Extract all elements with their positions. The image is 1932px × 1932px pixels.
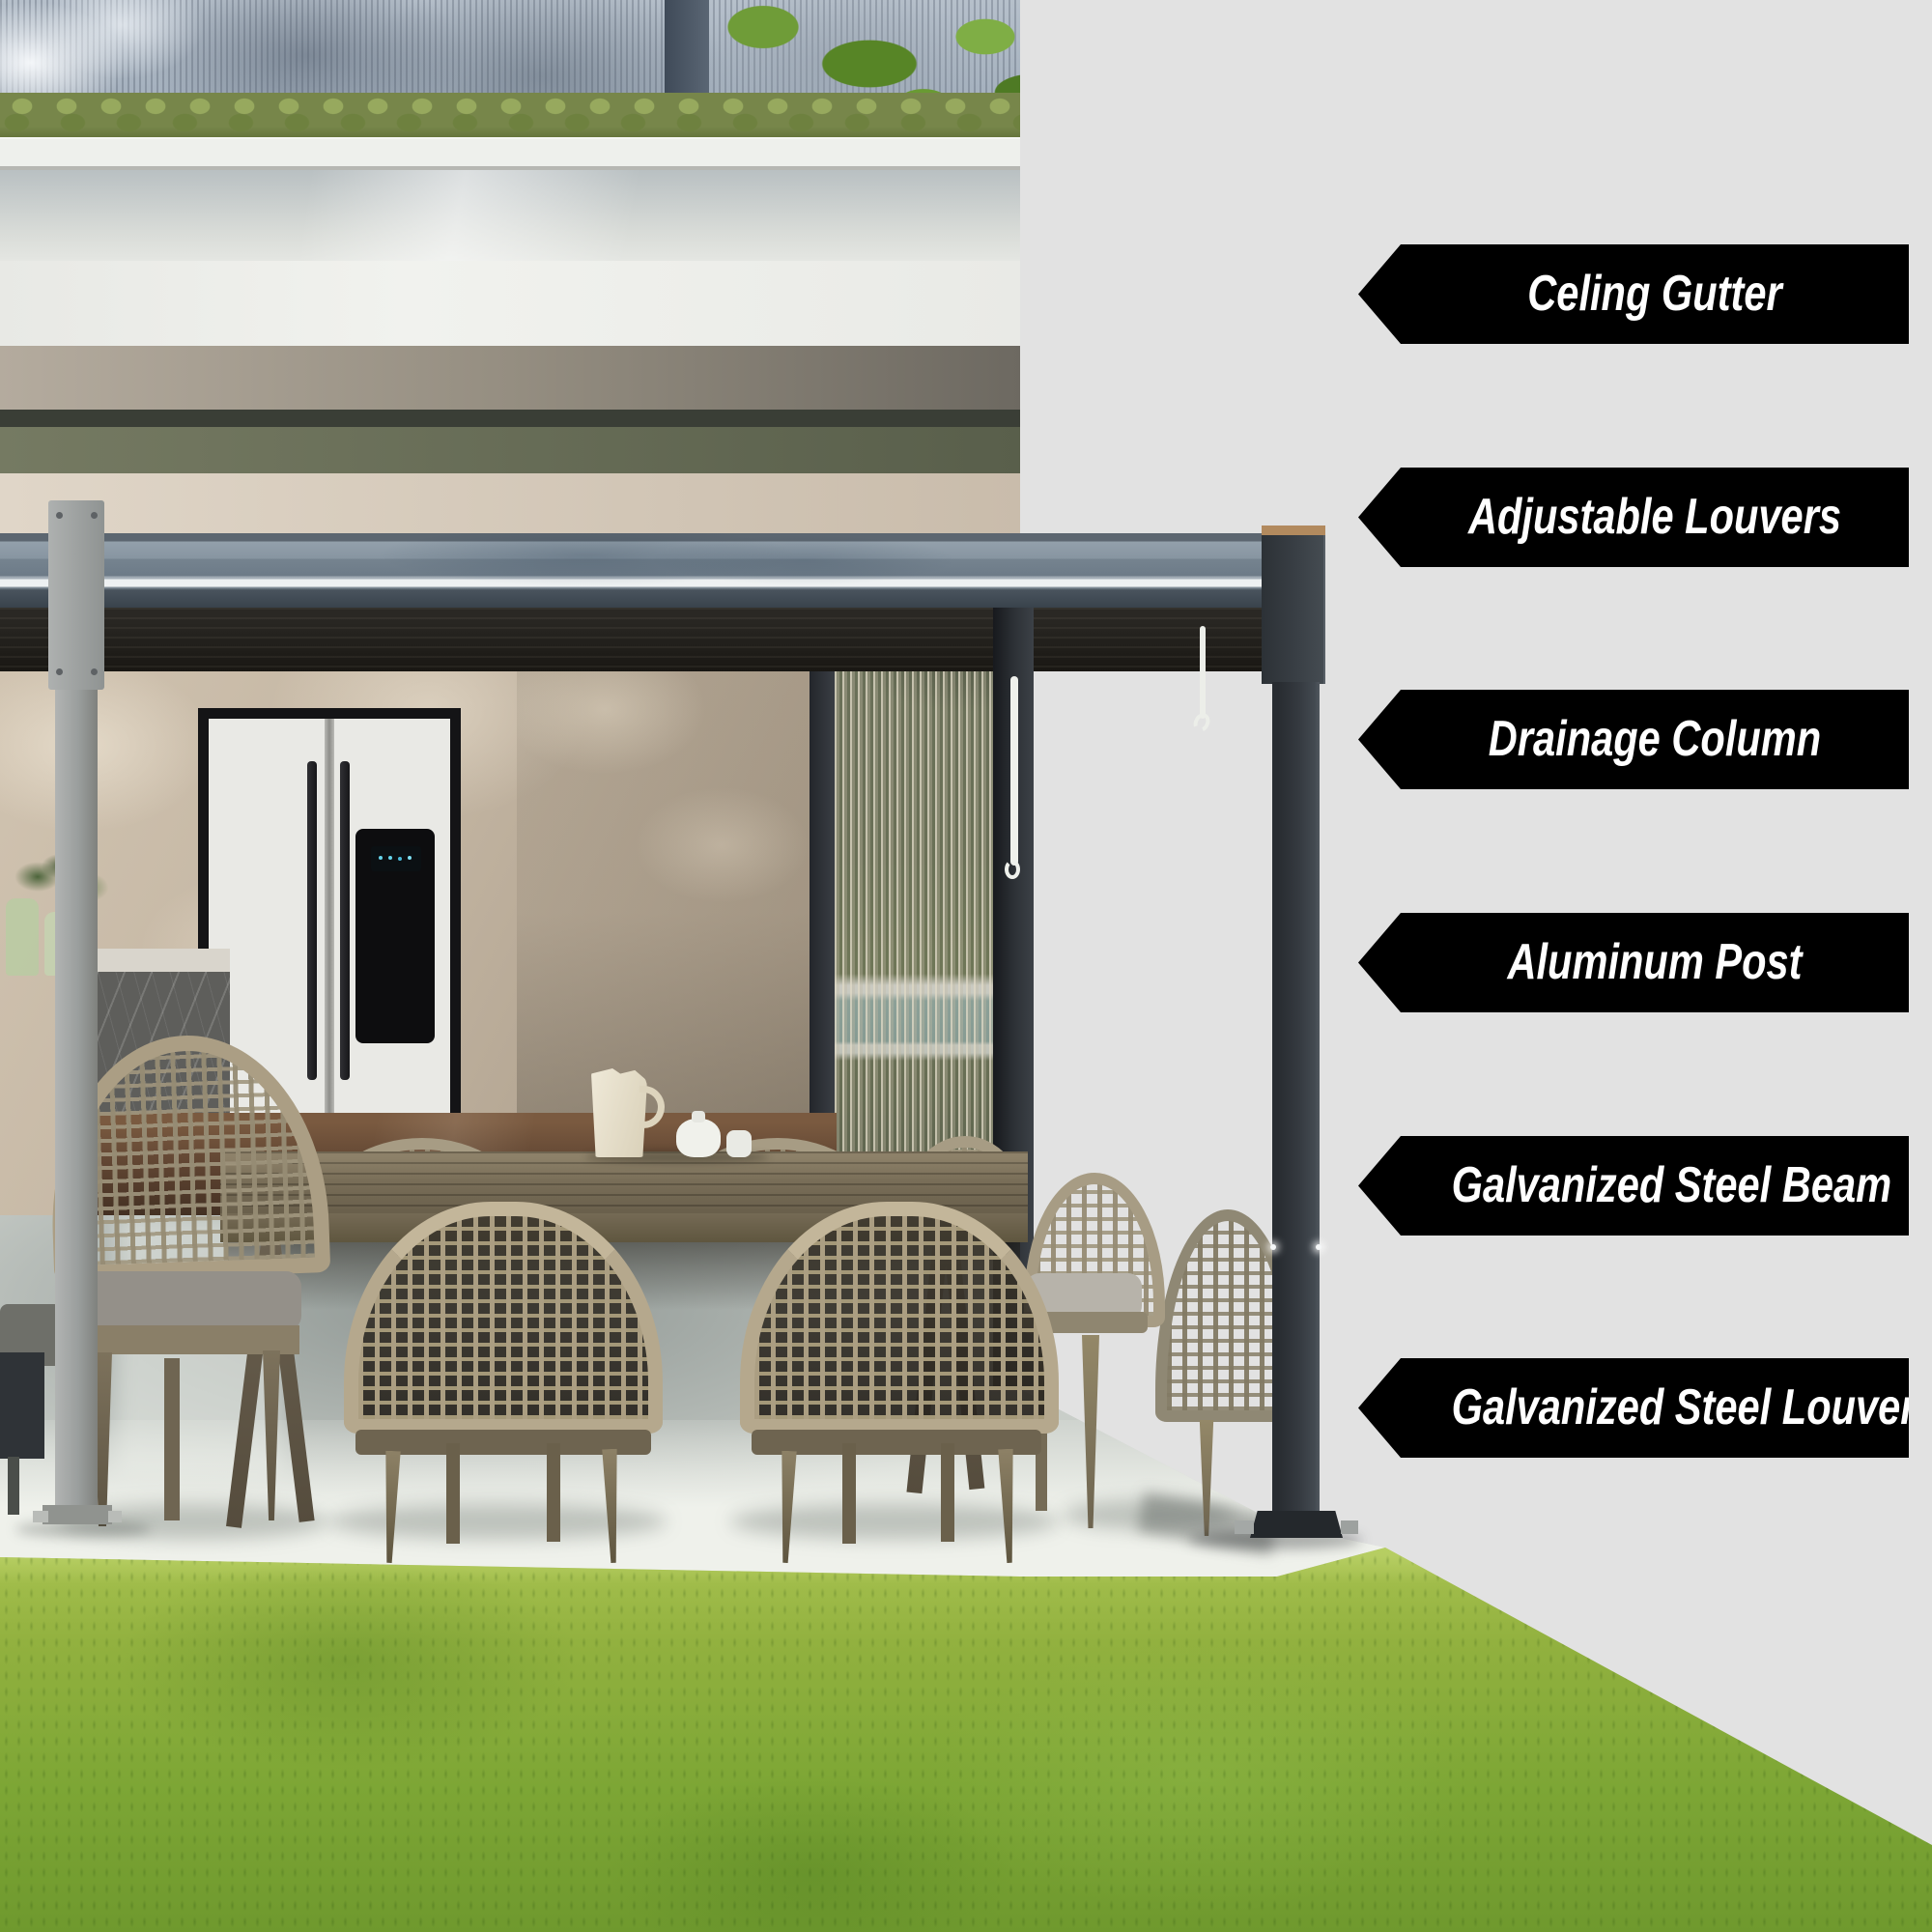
lounge-leg [8, 1457, 19, 1515]
pergola-post-plate [48, 500, 104, 690]
callout-ceiling-gutter: Celing Gutter [1358, 244, 1909, 344]
balcony-hedge [0, 93, 1020, 141]
chair-leg [547, 1443, 560, 1542]
anchor-plate [33, 1511, 48, 1522]
chair-leg [842, 1443, 856, 1544]
callout-label: Celing Gutter [1452, 244, 1859, 344]
louver-crank-hook [1005, 860, 1020, 879]
chair-cushion [79, 1271, 301, 1331]
pergola-corner-cap [1262, 526, 1325, 535]
callout-label: Galvanized Steel Louvers [1452, 1358, 1859, 1458]
callout-label: Drainage Column [1452, 690, 1859, 789]
pergola-corner-block [1262, 526, 1325, 684]
screw [91, 668, 98, 675]
screw [56, 512, 63, 519]
refrigerator-handle-left [307, 761, 317, 1080]
anchor-plate [1235, 1520, 1254, 1534]
interior-wall-band [0, 473, 1020, 539]
callout-galvanized-steel-louvers: Galvanized Steel Louvers [1358, 1358, 1909, 1458]
pergola-infographic: Celing Gutter Adjustable Louvers Drainag… [0, 0, 1932, 1932]
callout-label: Galvanized Steel Beam [1452, 1136, 1859, 1236]
anchor-plate [1341, 1520, 1358, 1534]
balcony-planter [0, 137, 1020, 170]
small-vase-neck [692, 1111, 705, 1122]
sun-glint [1270, 1244, 1276, 1250]
callout-galvanized-steel-beam: Galvanized Steel Beam [1358, 1136, 1909, 1236]
small-vase [676, 1119, 721, 1157]
pergola-post-right [1272, 682, 1320, 1536]
pergola-post-base-right [1250, 1511, 1343, 1538]
screw [91, 512, 98, 519]
chair-apron [81, 1325, 299, 1354]
callout-aluminum-post: Aluminum Post [1358, 913, 1909, 1012]
pergola-gutter-beam [0, 533, 1275, 608]
glass-vase [6, 898, 39, 976]
louver-crank-rod [1010, 676, 1018, 866]
hanging-cord [1200, 626, 1206, 719]
refrigerator-display-lights [379, 856, 383, 860]
callout-label: Aluminum Post [1452, 913, 1859, 1012]
callout-label: Adjustable Louvers [1452, 468, 1859, 567]
glass-wall-top-frame [0, 410, 1020, 427]
refrigerator-door-gap [325, 719, 334, 1119]
small-jar [726, 1130, 752, 1157]
anchor-plate [108, 1511, 122, 1522]
callout-drainage-column: Drainage Column [1358, 690, 1909, 789]
screw [56, 668, 63, 675]
lounge-frame [0, 1352, 44, 1459]
chair-leg [446, 1443, 460, 1544]
chair-leg [941, 1443, 954, 1542]
chair-leg [164, 1358, 180, 1520]
pergola-louvers-underside [0, 608, 1316, 671]
refrigerator-handle-right [340, 761, 350, 1080]
callout-adjustable-louvers: Adjustable Louvers [1358, 468, 1909, 567]
balcony-fascia-lower [0, 261, 1020, 346]
pergola-post-base-left [43, 1505, 112, 1524]
glass-reflection-band [0, 427, 1020, 473]
sun-glint [1316, 1244, 1321, 1250]
soffit-band [0, 346, 1020, 413]
balcony-fascia-upper [0, 170, 1020, 261]
chair-seat [752, 1430, 1041, 1455]
